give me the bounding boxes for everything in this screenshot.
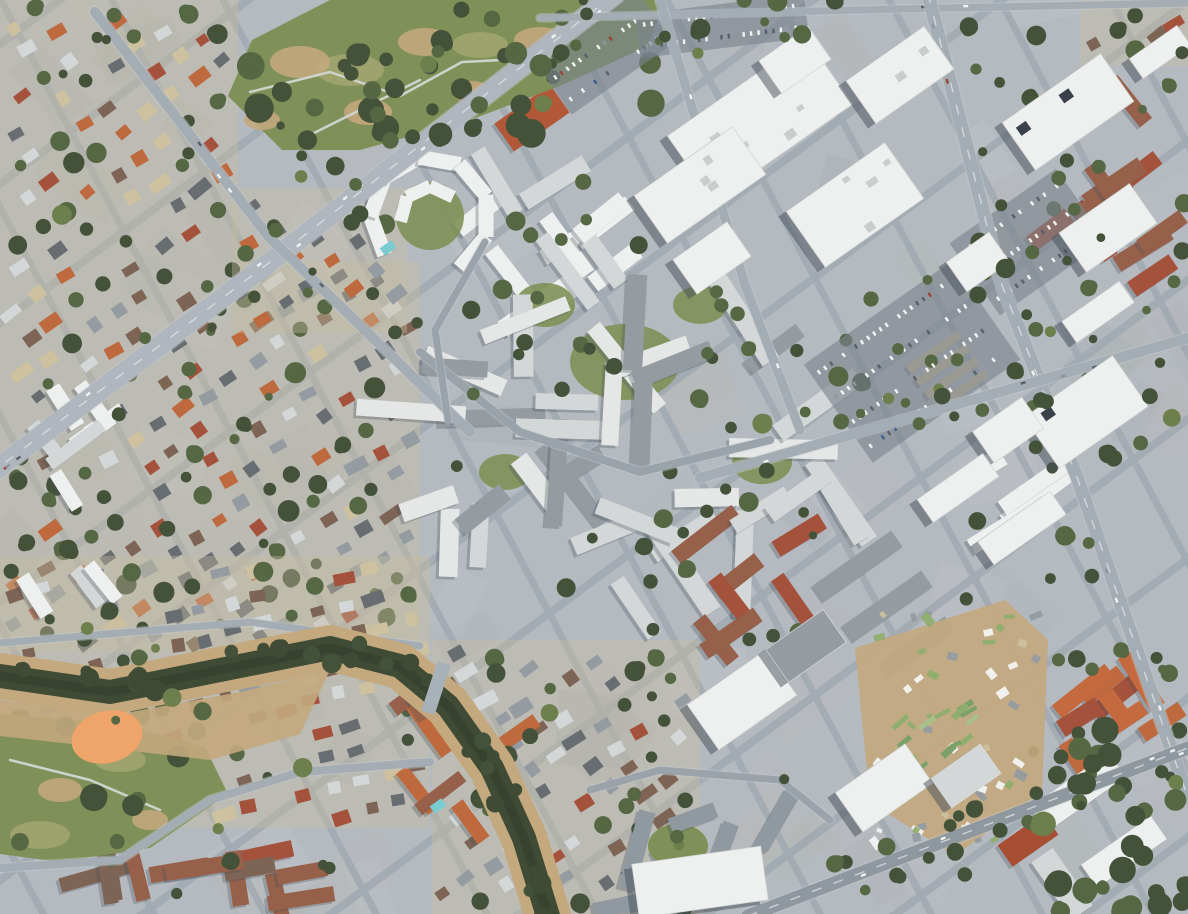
tree-icon	[1050, 770, 1063, 783]
tree-icon	[18, 540, 30, 552]
tree-icon	[512, 98, 527, 113]
tree-icon	[354, 44, 370, 60]
tree-icon	[327, 159, 340, 172]
tree-icon	[275, 87, 289, 101]
tree-icon	[365, 378, 380, 393]
tree-icon	[658, 714, 670, 726]
tree-icon	[790, 344, 803, 357]
tree-icon	[167, 693, 180, 706]
tree-icon	[1068, 203, 1081, 216]
tree-icon	[109, 8, 119, 18]
tree-icon	[133, 670, 148, 685]
tree-icon	[1088, 573, 1098, 583]
tree-icon	[80, 222, 93, 235]
tree-icon	[506, 214, 519, 227]
tree-icon	[285, 367, 300, 382]
tree-icon	[659, 31, 671, 43]
tree-icon	[579, 177, 590, 188]
tree-icon	[462, 746, 474, 758]
tree-icon	[1029, 440, 1043, 454]
tree-icon	[15, 160, 26, 171]
tree-icon	[1099, 445, 1112, 458]
tree-icon	[404, 654, 416, 666]
tree-icon	[587, 533, 598, 544]
tree-icon	[1138, 105, 1147, 114]
tree-icon	[760, 17, 769, 26]
tree-icon	[580, 7, 593, 20]
tree-icon	[431, 131, 447, 147]
tree-icon	[970, 289, 982, 301]
tree-icon	[154, 588, 169, 603]
tree-icon	[647, 623, 660, 636]
tree-icon	[949, 848, 961, 860]
tree-icon	[925, 355, 938, 368]
house	[331, 685, 345, 699]
tree-icon	[308, 268, 316, 276]
tree-icon	[995, 199, 1007, 211]
car	[757, 30, 760, 35]
tree-icon	[32, 0, 44, 11]
tree-icon	[255, 566, 269, 580]
tree-icon	[194, 490, 207, 503]
tree-icon	[182, 364, 192, 374]
tree-icon	[798, 507, 809, 518]
tree-icon	[312, 479, 325, 492]
tree-icon	[79, 74, 93, 88]
tree-icon	[1118, 647, 1129, 658]
tree-icon	[1096, 724, 1115, 743]
yard-clutter	[983, 639, 996, 644]
tree-icon	[962, 24, 975, 37]
tree-icon	[678, 565, 690, 577]
tree-icon	[100, 607, 112, 619]
tree-icon	[1070, 780, 1084, 794]
tree-icon	[960, 592, 973, 605]
tree-icon	[280, 504, 295, 519]
tree-icon	[1175, 894, 1188, 907]
tree-icon	[1162, 78, 1172, 88]
tree-icon	[307, 495, 320, 508]
tree-icon	[334, 442, 345, 453]
tree-icon	[301, 135, 315, 149]
tree-icon	[1044, 875, 1063, 894]
tree-icon	[388, 326, 402, 340]
tree-icon	[183, 389, 193, 399]
tree-icon	[746, 342, 757, 353]
tree-icon	[953, 810, 964, 821]
tree-icon	[181, 472, 192, 483]
car	[772, 28, 775, 33]
tree-icon	[677, 527, 689, 539]
tree-icon	[139, 332, 151, 344]
tree-icon	[949, 411, 959, 421]
tree-icon	[384, 136, 396, 148]
tree-icon	[171, 888, 182, 899]
tree-icon	[207, 322, 216, 331]
tree-icon	[81, 622, 94, 635]
tree-icon	[318, 860, 328, 870]
tree-icon	[362, 424, 373, 435]
tree-icon	[353, 639, 364, 650]
tree-icon	[241, 52, 260, 71]
tree-icon	[690, 26, 704, 40]
tree-icon	[523, 127, 543, 147]
tree-icon	[464, 306, 477, 319]
tree-icon	[55, 134, 69, 148]
tree-icon	[555, 233, 568, 246]
tree-icon	[526, 227, 537, 238]
tree-icon	[488, 11, 499, 22]
tree-icon	[84, 530, 98, 544]
car	[646, 44, 649, 49]
car	[780, 27, 783, 32]
tree-icon	[923, 275, 933, 285]
tree-icon	[303, 287, 313, 297]
tree-icon	[276, 121, 284, 129]
tree-icon	[978, 147, 987, 156]
tree-icon	[1076, 801, 1085, 810]
tree-icon	[779, 32, 790, 43]
tree-icon	[545, 683, 556, 694]
tree-icon	[893, 870, 906, 883]
tree-icon	[779, 774, 789, 784]
tree-icon	[88, 786, 107, 805]
tree-icon	[1073, 741, 1089, 757]
tree-icon	[682, 795, 693, 806]
tree-icon	[13, 477, 26, 490]
tree-icon	[126, 565, 139, 578]
tree-icon	[1104, 745, 1121, 762]
tree-icon	[1094, 161, 1104, 171]
tree-icon	[454, 4, 465, 15]
tree-icon	[379, 53, 393, 67]
tree-icon	[1062, 256, 1072, 266]
tree-icon	[92, 32, 103, 43]
tree-icon	[583, 343, 595, 355]
tree-icon	[1173, 780, 1183, 790]
tree-icon	[157, 272, 168, 283]
tree-icon	[221, 856, 233, 868]
tree-icon	[112, 834, 123, 845]
tree-icon	[654, 513, 667, 526]
tree-icon	[349, 178, 362, 191]
tree-icon	[959, 870, 969, 880]
tree-icon	[1074, 654, 1086, 666]
tree-icon	[1136, 440, 1146, 450]
tree-icon	[633, 239, 646, 252]
tree-icon	[665, 673, 676, 684]
tree-icon	[936, 391, 948, 403]
tree-icon	[509, 783, 522, 796]
apartment-bar	[632, 380, 653, 470]
tree-icon	[1085, 663, 1098, 676]
tree-icon	[1176, 46, 1188, 59]
tree-icon	[309, 101, 322, 114]
tree-icon	[509, 49, 525, 65]
tree-icon	[1137, 850, 1151, 864]
tree-icon	[451, 460, 463, 472]
tree-icon	[1052, 653, 1065, 666]
dirt-patch	[38, 778, 82, 802]
tree-icon	[79, 467, 92, 480]
tree-icon	[421, 61, 433, 73]
car	[683, 39, 686, 44]
tree-icon	[1142, 306, 1151, 315]
tree-icon	[242, 248, 254, 260]
tree-icon	[476, 733, 488, 745]
satellite-imagery-canvas[interactable]: aerial-satellite-view	[0, 0, 1188, 914]
tree-icon	[83, 671, 96, 684]
tree-icon	[65, 546, 78, 559]
tree-icon	[1131, 8, 1142, 19]
tree-icon	[186, 445, 198, 457]
tree-icon	[1035, 397, 1046, 408]
apartment-bar	[479, 195, 494, 237]
tree-icon	[1062, 530, 1076, 544]
tree-icon	[883, 393, 894, 404]
tree-icon	[368, 82, 381, 95]
tree-icon	[1086, 280, 1098, 292]
tree-icon	[860, 885, 871, 896]
tree-icon	[265, 393, 273, 401]
tree-icon	[1111, 860, 1130, 879]
tree-icon	[1155, 765, 1168, 778]
tree-icon	[1083, 537, 1095, 549]
tree-icon	[648, 649, 660, 661]
tree-icon	[1109, 787, 1121, 799]
house	[327, 781, 341, 795]
tree-icon	[1077, 886, 1095, 904]
tree-icon	[901, 398, 911, 408]
tree-icon	[467, 388, 480, 401]
tree-icon	[720, 484, 731, 495]
tree-icon	[1052, 901, 1066, 914]
tree-icon	[1045, 573, 1056, 584]
tree-icon	[595, 821, 607, 833]
tree-icon	[159, 523, 170, 534]
tree-icon	[996, 826, 1006, 836]
tree-icon	[1115, 22, 1127, 34]
house	[359, 681, 376, 695]
house	[366, 801, 379, 814]
tree-icon	[1097, 233, 1106, 242]
tree-icon	[486, 796, 498, 808]
tree-icon	[296, 150, 307, 161]
car	[658, 20, 661, 25]
tree-icon	[272, 223, 282, 233]
tree-icon	[40, 72, 50, 82]
tree-icon	[1025, 245, 1039, 259]
tree-icon	[1155, 358, 1165, 368]
tree-icon	[70, 294, 81, 305]
tree-icon	[1045, 326, 1056, 337]
tree-icon	[997, 263, 1011, 277]
tree-icon	[207, 26, 221, 40]
house	[249, 589, 266, 603]
tree-icon	[1030, 28, 1044, 42]
car	[727, 34, 730, 39]
tree-icon	[120, 235, 133, 248]
tree-icon	[68, 154, 83, 169]
tree-icon	[405, 591, 416, 602]
tree-icon	[345, 657, 356, 668]
tree-icon	[692, 48, 703, 59]
tree-icon	[734, 309, 744, 319]
tree-icon	[366, 287, 379, 300]
tree-icon	[542, 708, 554, 720]
tree-icon	[197, 705, 210, 718]
tree-icon	[327, 654, 341, 668]
tree-icon	[951, 353, 964, 366]
tree-icon	[295, 170, 308, 183]
tree-icon	[12, 835, 24, 847]
tree-icon	[516, 336, 528, 348]
tree-icon	[215, 93, 226, 104]
tree-icon	[581, 214, 592, 225]
tree-icon	[971, 800, 983, 812]
tree-icon	[742, 633, 756, 647]
tree-icon	[1030, 818, 1047, 835]
tree-icon	[800, 407, 811, 418]
tree-icon	[832, 855, 844, 867]
tree-icon	[557, 45, 569, 57]
tree-icon	[865, 295, 876, 306]
tree-icon	[487, 750, 500, 763]
tree-icon	[913, 417, 926, 430]
tree-icon	[286, 610, 298, 622]
tree-icon	[248, 291, 260, 303]
tree-icon	[212, 204, 223, 215]
tree-icon	[112, 410, 122, 420]
tree-icon	[1032, 324, 1042, 334]
tree-icon	[647, 691, 657, 701]
tree-icon	[574, 900, 588, 914]
tree-icon	[1089, 335, 1098, 344]
tree-icon	[1098, 880, 1108, 890]
tree-icon	[411, 317, 422, 328]
tree-icon	[631, 661, 645, 675]
car	[720, 35, 723, 40]
apartment-bar	[535, 393, 598, 411]
tree-icon	[100, 280, 111, 291]
tree-icon	[66, 335, 80, 349]
tree-icon	[126, 795, 141, 810]
tree-icon	[646, 751, 657, 762]
tree-icon	[402, 734, 414, 746]
tree-icon	[476, 98, 488, 110]
tree-icon	[111, 516, 123, 528]
tree-icon	[269, 544, 280, 555]
tree-icon	[46, 497, 56, 507]
tree-icon	[570, 40, 581, 51]
tree-icon	[241, 421, 252, 432]
tree-icon	[573, 337, 584, 348]
tree-icon	[1061, 156, 1071, 166]
tree-icon	[1145, 392, 1156, 403]
tree-icon	[43, 378, 54, 389]
tree-icon	[1054, 176, 1064, 186]
car	[735, 33, 738, 38]
tree-icon	[496, 282, 510, 296]
tree-icon	[622, 802, 633, 813]
tree-icon	[41, 222, 52, 233]
tree-icon	[1151, 652, 1163, 664]
tree-icon	[406, 133, 416, 143]
tree-icon	[1129, 810, 1143, 824]
tree-icon	[179, 5, 192, 18]
house	[171, 638, 185, 653]
tree-icon	[351, 499, 363, 511]
tree-icon	[923, 852, 935, 864]
tree-icon	[426, 103, 438, 115]
tree-icon	[390, 83, 404, 97]
tree-icon	[701, 347, 713, 359]
tree-icon	[186, 579, 197, 590]
tree-icon	[881, 840, 893, 852]
tree-icon	[288, 468, 300, 480]
tree-icon	[742, 495, 756, 509]
tree-icon	[605, 362, 617, 374]
car	[963, 5, 968, 8]
tree-icon	[225, 645, 239, 659]
tree-icon	[456, 81, 471, 96]
tree-icon	[1056, 753, 1066, 763]
tree-icon	[379, 657, 393, 671]
tree-icon	[201, 280, 214, 293]
tree-icon	[513, 349, 524, 360]
tree-icon	[530, 58, 546, 74]
tree-icon	[530, 291, 544, 305]
tree-icon	[257, 643, 269, 655]
tree-icon	[473, 897, 485, 909]
tree-icon	[556, 385, 567, 396]
tree-icon	[6, 565, 17, 576]
tree-icon	[758, 414, 772, 428]
tree-icon	[353, 208, 365, 220]
tree-icon	[944, 819, 957, 832]
tree-icon	[303, 648, 315, 660]
tree-icon	[645, 575, 655, 585]
tree-icon	[834, 370, 848, 384]
tree-icon	[131, 30, 141, 40]
tree-icon	[111, 716, 120, 725]
tree-icon	[275, 639, 288, 652]
tree-icon	[700, 505, 713, 518]
tree-icon	[151, 644, 160, 653]
tree-icon	[90, 147, 104, 161]
tree-icon	[835, 417, 846, 428]
tree-icon	[1012, 367, 1024, 379]
tree-icon	[246, 94, 267, 115]
tree-icon	[432, 45, 445, 58]
tree-icon	[670, 830, 684, 844]
tree-icon	[627, 787, 641, 801]
tree-icon	[136, 651, 147, 662]
aerial-satellite-view[interactable]: aerial-satellite-view	[0, 0, 1188, 914]
tree-icon	[1030, 786, 1044, 800]
tree-icon	[364, 483, 377, 496]
tree-icon	[263, 483, 276, 496]
tree-icon	[994, 77, 1005, 88]
tree-icon	[540, 96, 552, 108]
tree-icon	[892, 343, 904, 355]
tree-icon	[809, 531, 817, 539]
tree-icon	[1170, 794, 1185, 809]
tree-icon	[59, 70, 68, 79]
tree-icon	[213, 823, 224, 834]
tree-icon	[489, 663, 502, 676]
tree-icon	[102, 493, 112, 503]
